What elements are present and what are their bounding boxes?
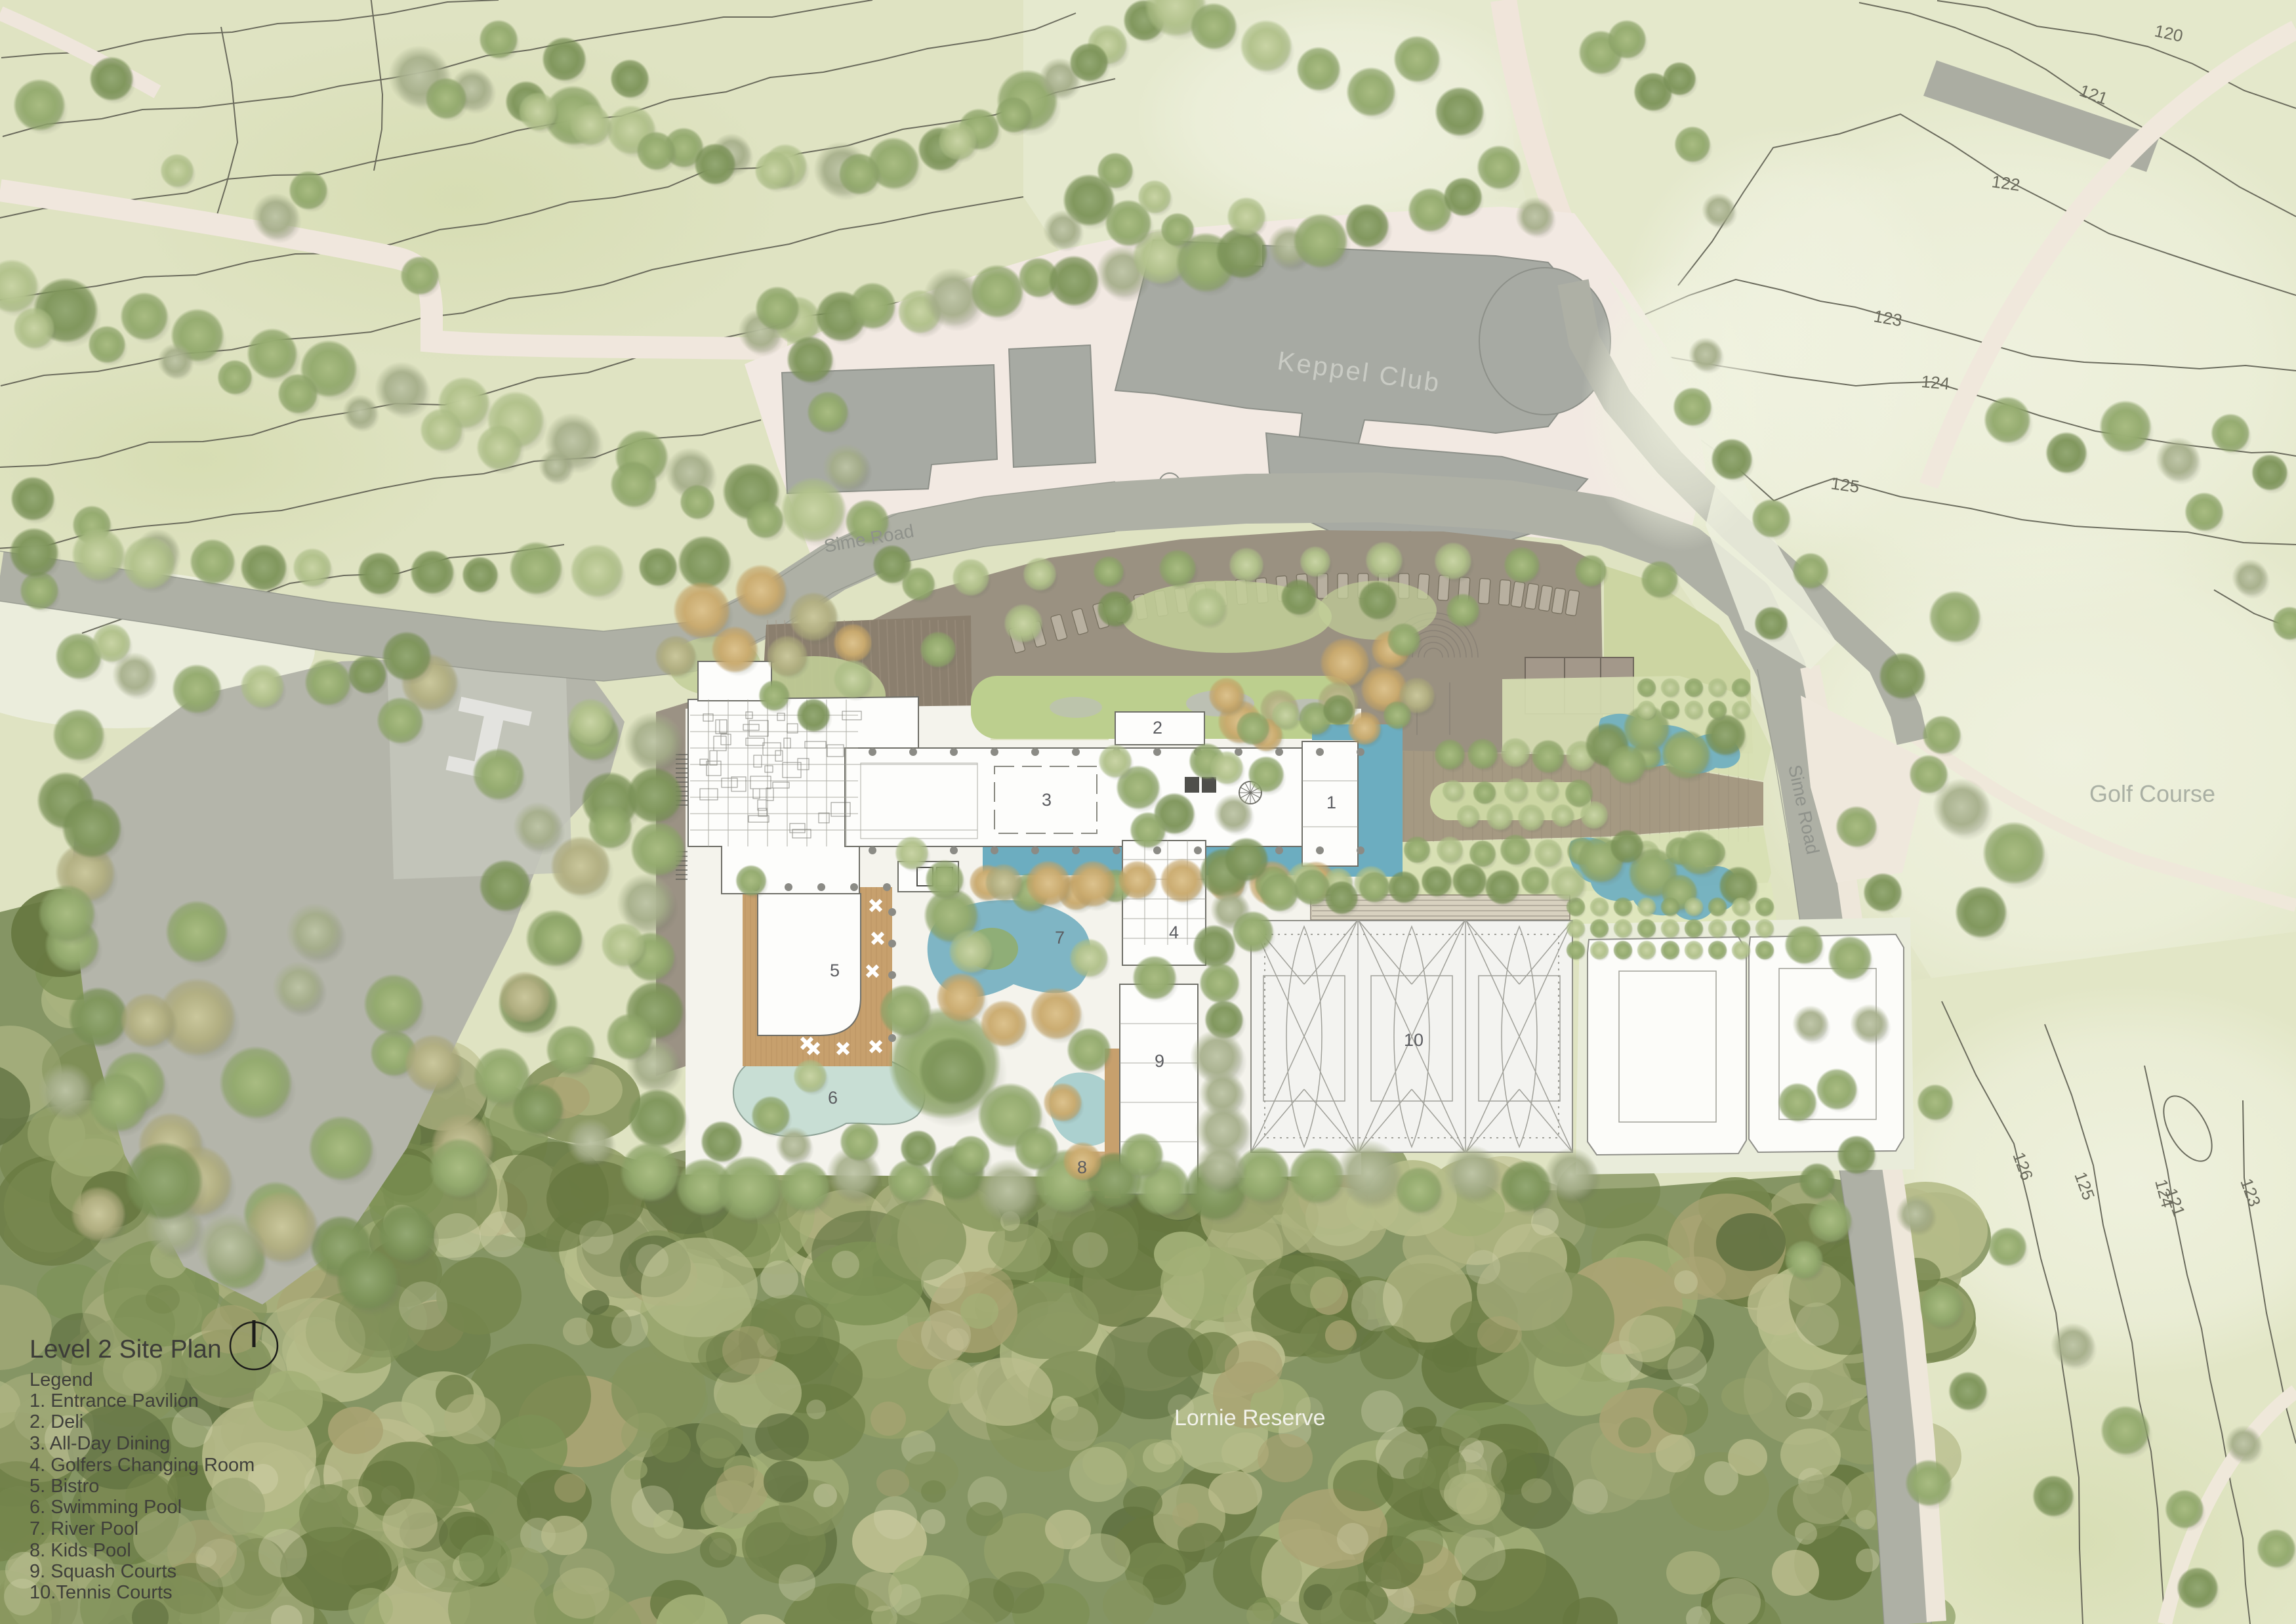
svg-text:8. Kids Pool: 8. Kids Pool <box>30 1540 131 1561</box>
svg-text:124: 124 <box>1920 371 1950 394</box>
svg-text:Golf Course: Golf Course <box>2089 780 2215 807</box>
svg-text:7: 7 <box>1055 928 1065 947</box>
svg-text:3. All-Day Dining: 3. All-Day Dining <box>30 1433 170 1454</box>
svg-text:9. Squash Courts: 9. Squash Courts <box>30 1561 176 1582</box>
svg-text:122: 122 <box>1990 171 2021 195</box>
svg-text:1. Entrance Pavilion: 1. Entrance Pavilion <box>30 1390 199 1411</box>
svg-text:6. Swimming Pool: 6. Swimming Pool <box>30 1497 182 1518</box>
svg-text:10.Tennis Courts: 10.Tennis Courts <box>30 1582 173 1603</box>
svg-text:2: 2 <box>1153 718 1162 738</box>
svg-text:5: 5 <box>830 961 840 980</box>
svg-text:8: 8 <box>1077 1157 1087 1177</box>
svg-text:7. River Pool: 7. River Pool <box>30 1518 138 1539</box>
svg-text:10: 10 <box>1404 1030 1424 1050</box>
svg-text:5. Bistro: 5. Bistro <box>30 1476 99 1497</box>
svg-text:3: 3 <box>1042 790 1052 810</box>
svg-text:9: 9 <box>1155 1051 1164 1071</box>
svg-text:Level 2 Site Plan: Level 2 Site Plan <box>30 1335 222 1364</box>
svg-text:4. Golfers Changing Room: 4. Golfers Changing Room <box>30 1455 255 1476</box>
svg-text:Lornie Reserve: Lornie Reserve <box>1174 1405 1326 1430</box>
svg-text:Legend: Legend <box>30 1369 93 1390</box>
svg-text:1: 1 <box>1326 793 1336 812</box>
svg-text:4: 4 <box>1169 923 1179 942</box>
svg-text:2. Deli: 2. Deli <box>30 1411 83 1432</box>
svg-text:6: 6 <box>828 1088 838 1108</box>
svg-text:125: 125 <box>1830 473 1860 497</box>
